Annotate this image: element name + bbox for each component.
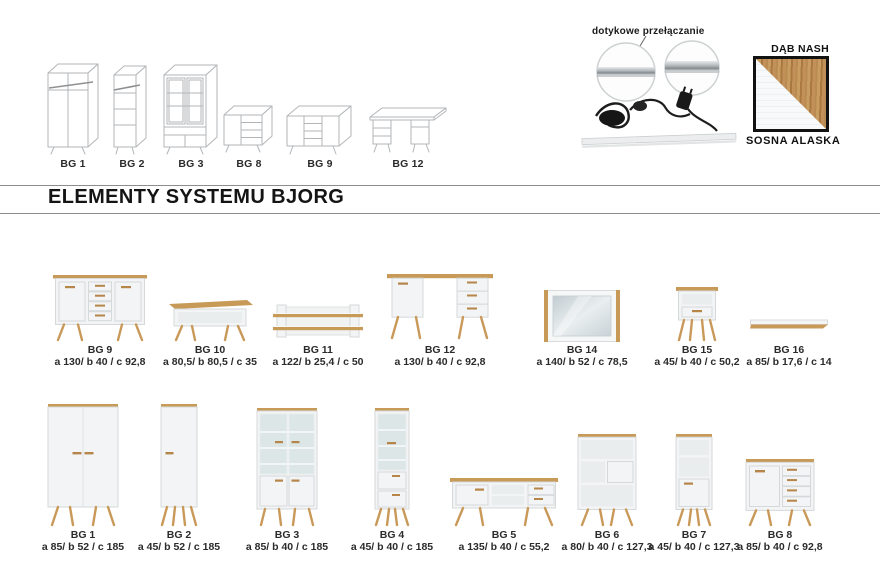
product-name: BG 10 xyxy=(195,345,225,356)
product-dimensions: a 140/ b 52 / c 78,5 xyxy=(536,357,627,368)
sketch-bg-8: BG 8 xyxy=(222,52,276,170)
oak-finish-triangle xyxy=(756,59,826,129)
led-strip xyxy=(582,133,736,148)
product-bg-14: BG 14 a 140/ b 52 / c 78,5 xyxy=(538,260,626,368)
product-dimensions: a 45/ b 40 / c 185 xyxy=(351,542,433,553)
product-bg-4: BG 4 a 45/ b 40 / c 185 xyxy=(372,403,412,553)
cabinet-sketch-icon xyxy=(112,59,152,155)
product-bg-3: BG 3 a 85/ b 40 / c 185 xyxy=(254,403,320,553)
product-image-tall-cabinet xyxy=(159,403,199,527)
vitrine-sketch-icon xyxy=(162,59,220,155)
sketch-label: BG 8 xyxy=(236,159,261,170)
page-title: ELEMENTY SYSTEMU BJORG xyxy=(48,186,344,209)
product-name: BG 8 xyxy=(768,530,793,541)
chest-sketch-icon xyxy=(222,91,276,155)
swatch-label-oak: DĄB NASH xyxy=(736,43,829,55)
sketch-label: BG 1 xyxy=(60,159,85,170)
divider-bottom xyxy=(0,213,880,214)
product-name: BG 16 xyxy=(774,345,804,356)
product-name: BG 6 xyxy=(595,530,620,541)
product-name: BG 5 xyxy=(492,530,517,541)
product-dimensions: a 45/ b 52 / c 185 xyxy=(138,542,220,553)
sketch-label: BG 12 xyxy=(392,159,423,170)
product-bg-11: BG 11 a 122/ b 25,4 / c 50 xyxy=(268,260,368,368)
product-bg-12: BG 12 a 130/ b 40 / c 92,8 xyxy=(384,260,496,368)
product-dimensions: a 130/ b 40 / c 92,8 xyxy=(54,357,145,368)
swatch-label-pine: SOSNA ALASKA xyxy=(746,135,840,147)
desk-sketch-icon xyxy=(368,99,448,155)
finish-swatch xyxy=(753,56,829,132)
led-lighting-figure xyxy=(578,36,758,160)
wardrobe-sketch-icon xyxy=(46,59,100,155)
sketch-bg-2: BG 2 xyxy=(106,52,158,170)
product-name: BG 2 xyxy=(167,530,192,541)
sketch-label: BG 3 xyxy=(178,159,203,170)
product-image-tv-stand xyxy=(450,475,558,527)
product-name: BG 14 xyxy=(567,345,597,356)
product-image-desk xyxy=(387,268,493,342)
sketch-bg-9: BG 9 xyxy=(282,52,358,170)
product-image-shelf xyxy=(750,316,828,332)
product-bg-5: BG 5 a 135/ b 40 / c 55,2 xyxy=(449,403,559,553)
product-bg-9: BG 9 a 130/ b 40 / c 92,8 xyxy=(48,260,152,368)
product-bg-2: BG 2 a 45/ b 52 / c 185 xyxy=(158,403,200,553)
product-image-sideboard xyxy=(52,270,148,342)
product-bg-8: BG 8 a 85/ b 40 / c 92,8 xyxy=(743,403,817,553)
product-dimensions: a 130/ b 40 / c 92,8 xyxy=(394,357,485,368)
product-name: BG 9 xyxy=(88,345,113,356)
product-image-wardrobe xyxy=(46,403,120,527)
product-dimensions: a 80,5/ b 80,5 / c 35 xyxy=(163,357,257,368)
product-image-chest xyxy=(744,457,816,527)
product-bg-6: BG 6 a 80/ b 40 / c 127,3 xyxy=(575,403,639,553)
product-image-bookcase xyxy=(576,433,638,527)
product-bg-1: BG 1 a 85/ b 52 / c 185 xyxy=(45,403,121,553)
product-dimensions: a 45/ b 40 / c 50,2 xyxy=(654,357,739,368)
product-name: BG 11 xyxy=(303,345,333,356)
product-name: BG 12 xyxy=(425,345,455,356)
sketch-label: BG 9 xyxy=(307,159,332,170)
product-name: BG 7 xyxy=(682,530,707,541)
product-dimensions: a 85/ b 52 / c 185 xyxy=(42,542,124,553)
sideboard-sketch-icon xyxy=(285,96,355,155)
product-image-nightstand xyxy=(675,284,719,342)
sketch-bg-12: BG 12 xyxy=(362,52,454,170)
product-dimensions: a 85/ b 40 / c 185 xyxy=(246,542,328,553)
product-dimensions: a 80/ b 40 / c 127,3 xyxy=(561,542,652,553)
product-name: BG 1 xyxy=(71,530,96,541)
product-image-wall-shelf xyxy=(272,300,364,342)
product-image-display-cabinet xyxy=(255,407,319,527)
product-bg-10: BG 10 a 80,5/ b 80,5 / c 35 xyxy=(160,260,260,368)
product-image-mirror xyxy=(544,290,620,342)
product-bg-15: BG 15 a 45/ b 40 / c 50,2 xyxy=(662,260,732,368)
product-dimensions: a 135/ b 40 / c 55,2 xyxy=(458,542,549,553)
product-image-narrow-vitrine xyxy=(373,407,411,527)
product-dimensions: a 122/ b 25,4 / c 50 xyxy=(272,357,363,368)
sketch-label: BG 2 xyxy=(119,159,144,170)
sketch-bg-1: BG 1 xyxy=(42,52,104,170)
catalog-page: BG 1 BG 2 B xyxy=(0,0,880,582)
product-name: BG 15 xyxy=(682,345,712,356)
sketch-bg-3: BG 3 xyxy=(160,52,222,170)
product-dimensions: a 45/ b 40 / c 127,3 xyxy=(648,542,739,553)
product-bg-16: BG 16 a 85/ b 17,6 / c 14 xyxy=(744,260,834,368)
product-dimensions: a 85/ b 17,6 / c 14 xyxy=(746,357,831,368)
product-name: BG 3 xyxy=(275,530,300,541)
product-bg-7: BG 7 a 45/ b 40 / c 127,3 xyxy=(673,403,715,553)
product-dimensions: a 85/ b 40 / c 92,8 xyxy=(737,542,822,553)
product-name: BG 4 xyxy=(380,530,405,541)
product-image-narrow-bookcase xyxy=(674,433,714,527)
product-image-coffee-table xyxy=(166,296,254,342)
